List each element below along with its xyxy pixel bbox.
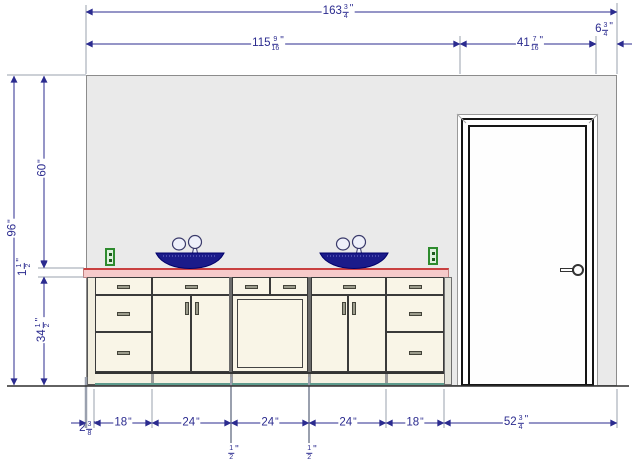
cabinet-door	[311, 295, 348, 372]
power-outlet-icon	[428, 247, 438, 265]
sink-bowl	[156, 253, 224, 269]
dim-cabinet-4: 24"	[338, 417, 357, 429]
drawer-handle	[117, 285, 130, 289]
drawer-handle	[185, 285, 198, 289]
dim-door-to-corner: 634"	[594, 22, 614, 38]
drawer-handle	[117, 351, 130, 355]
drawer-handle	[117, 312, 130, 316]
dim-cabinet-5: 18"	[405, 417, 424, 429]
door-handle	[342, 302, 346, 315]
drawer	[386, 295, 444, 332]
dim-counter-thickness: 112"	[16, 257, 32, 277]
drawer	[311, 277, 386, 295]
toe-kick-divider	[308, 374, 311, 383]
sink-base-panel	[237, 299, 303, 368]
dim-cabinet-2: 24"	[181, 417, 200, 429]
faucet-icon	[173, 238, 186, 250]
drawer-handle	[409, 285, 422, 289]
faucet-icon	[189, 236, 202, 249]
faucet-stem	[193, 249, 198, 254]
drawer-handle	[343, 285, 356, 289]
drawer	[270, 277, 308, 295]
door-knob-icon	[572, 264, 584, 276]
dim-left-filler: 238"	[78, 421, 98, 437]
cabinet-door	[191, 295, 230, 372]
dim-total-width: 16334"	[322, 4, 355, 20]
door-handle	[352, 302, 356, 315]
dim-cabinet-3: 24"	[260, 417, 279, 429]
dim-above-counter: 60"	[37, 158, 49, 177]
dim-cabinet-1: 18"	[113, 417, 132, 429]
drawer	[95, 295, 152, 332]
faucet-stem	[357, 249, 362, 254]
dim-gap-2: 12"	[304, 445, 317, 461]
sink-bowl	[320, 253, 388, 269]
faucet-icon	[337, 238, 350, 250]
door	[468, 125, 587, 386]
dim-wall-height: 96"	[7, 218, 19, 237]
drawer	[152, 277, 230, 295]
drawer-handle	[245, 285, 258, 289]
drawer	[95, 277, 152, 295]
drawer	[386, 277, 444, 295]
drawer-handle	[409, 312, 422, 316]
dim-wall-to-door: 115916"	[251, 36, 285, 52]
vessel-sink-icon	[319, 233, 393, 270]
dim-door-width: 41716"	[516, 36, 544, 52]
dim-counter-height: 3412"	[35, 317, 51, 343]
faucet-icon	[353, 236, 366, 249]
door-handle	[185, 302, 189, 315]
vessel-sink-icon	[155, 233, 229, 270]
toe-kick-divider	[151, 374, 154, 383]
door-handle	[195, 302, 199, 315]
dim-door-section: 5234"	[503, 415, 529, 431]
drawer	[95, 332, 152, 372]
toe-kick-divider	[230, 374, 233, 383]
drawer	[386, 332, 444, 372]
cabinet-door	[348, 295, 386, 372]
toe-kick-divider	[385, 374, 388, 383]
drawer-handle	[409, 351, 422, 355]
dim-gap-1: 12"	[226, 445, 239, 461]
drawer	[232, 277, 270, 295]
drawer-handle	[283, 285, 296, 289]
sink-base-opening	[232, 295, 308, 372]
cabinet-door	[152, 295, 191, 372]
vanity-elevation-drawing: 16334" 115916" 41716" 634" 96" 60" 112" …	[0, 0, 640, 469]
right-filler-panel	[444, 277, 452, 385]
power-outlet-icon	[105, 248, 115, 266]
toe-kick	[95, 372, 444, 385]
